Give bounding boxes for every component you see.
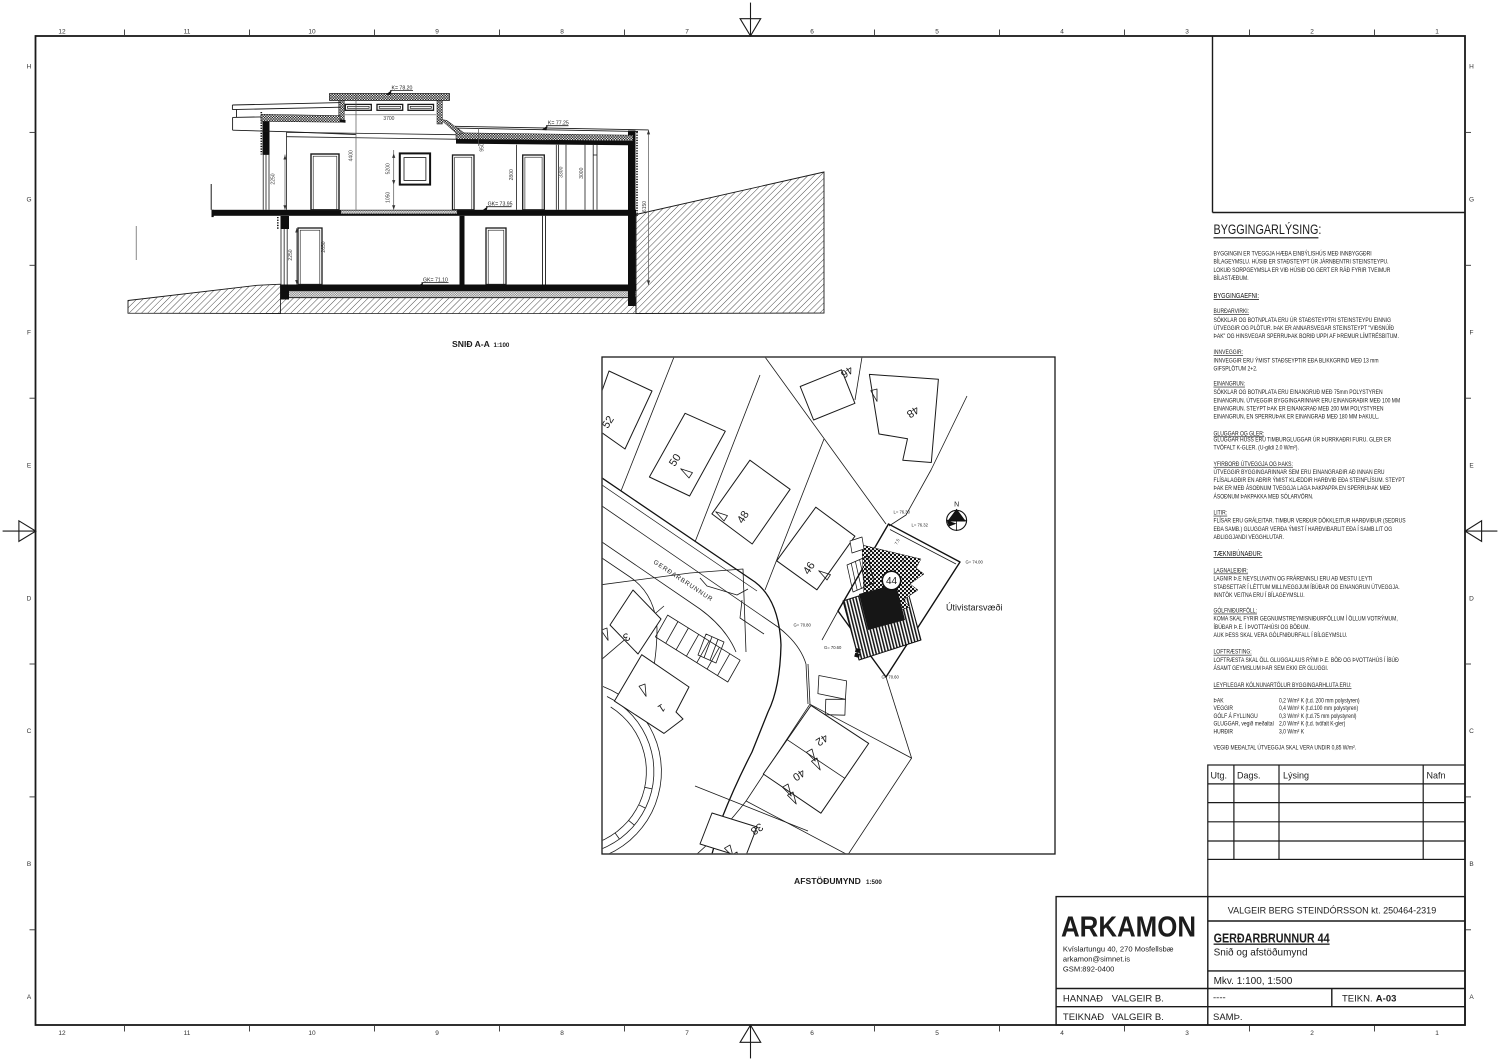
svg-text:7: 7 [685, 29, 689, 36]
svg-text:LOFTRÆSTA SKAL ÖLL GLUGGALAUS: LOFTRÆSTA SKAL ÖLL GLUGGALAUS RÝMI Þ.E. … [1214, 656, 1399, 664]
svg-text:Mkv. 1:100, 1:500: Mkv. 1:100, 1:500 [1214, 976, 1293, 987]
svg-text:KOMA SKAL FYRIR GEGNUMSTREYMIS: KOMA SKAL FYRIR GEGNUMSTREYMISNIÐURFÖLLU… [1214, 615, 1399, 623]
svg-text:GLUGGAR, vegið meðaltal: GLUGGAR, vegið meðaltal [1214, 720, 1274, 728]
svg-text:ÚTVEGGIR BYGGINGARINNAR SEM ER: ÚTVEGGIR BYGGINGARINNAR SEM ERU EINANGRA… [1214, 468, 1385, 476]
svg-text:GSM:892-0400: GSM:892-0400 [1063, 965, 1115, 974]
svg-text:8: 8 [560, 1030, 564, 1037]
svg-text:Snið og afstöðumynd: Snið og afstöðumynd [1214, 947, 1308, 959]
svg-text:A: A [27, 994, 32, 1001]
svg-text:AUK ÞESS SKAL VERA GÓLFNIÐURFA: AUK ÞESS SKAL VERA GÓLFNIÐURFALL Í BÍLGE… [1214, 631, 1348, 639]
svg-text:L= 76.30: L= 76.30 [894, 510, 911, 515]
svg-text:2800: 2800 [509, 169, 515, 180]
svg-text:H: H [27, 64, 32, 71]
svg-text:3000: 3000 [579, 167, 585, 178]
svg-text:3,0 W/m² K: 3,0 W/m² K [1279, 729, 1304, 736]
svg-text:4400: 4400 [348, 150, 354, 161]
svg-text:BYGGINGAEFNI:: BYGGINGAEFNI: [1214, 292, 1260, 300]
svg-text:TEIKNAÐ: TEIKNAÐ [1063, 1012, 1104, 1023]
svg-text:0,4 W/m² K (t.d.100 mm polysty: 0,4 W/m² K (t.d.100 mm polystyren) [1279, 706, 1358, 713]
svg-text:G= 70.60: G= 70.60 [824, 645, 842, 650]
svg-text:3: 3 [1185, 1030, 1189, 1037]
svg-text:LEYFILEGAR KÓLNUNARTÖLUR BYGGI: LEYFILEGAR KÓLNUNARTÖLUR BYGGINGARHLUTA … [1214, 681, 1352, 689]
svg-text:GÓLF Á FYLLINGU: GÓLF Á FYLLINGU [1214, 712, 1258, 720]
svg-text:10: 10 [308, 1030, 316, 1037]
svg-text:D: D [27, 595, 32, 602]
svg-text:6: 6 [810, 1030, 814, 1037]
svg-text:4: 4 [1060, 29, 1064, 36]
svg-text:ÁSAMT GEYMSLUM ÞAR SEM EKKI ER: ÁSAMT GEYMSLUM ÞAR SEM EKKI ER GLUGGI. [1214, 664, 1329, 672]
svg-text:5200: 5200 [386, 163, 392, 174]
svg-text:LAGNALEIÐIR:: LAGNALEIÐIR: [1214, 568, 1249, 575]
svg-text:EINANGRUN, EN SPERRUÞAK ER EIN: EINANGRUN, EN SPERRUÞAK ER EINANGRAÐ MEÐ… [1214, 414, 1380, 421]
svg-text:FLÍSALAGÐIR EN AÐRIR ÝMIST KLÆ: FLÍSALAGÐIR EN AÐRIR ÝMIST KLÆDDIR HARÐV… [1214, 476, 1406, 484]
svg-text:7: 7 [685, 1030, 689, 1037]
svg-text:SAMÞ.: SAMÞ. [1213, 1012, 1243, 1023]
svg-text:B: B [27, 861, 31, 868]
svg-text:0,3 W/m² K (t.d.75 mm polystyr: 0,3 W/m² K (t.d.75 mm polystyrenl) [1279, 713, 1356, 720]
svg-text:TVÖFALT K-GLER. (U-gildi 2.0 W: TVÖFALT K-GLER. (U-gildi 2.0 W/m²). [1214, 444, 1300, 452]
svg-text:2,0 W/m² K (t.d. tvöfalt K-gle: 2,0 W/m² K (t.d. tvöfalt K-gler) [1279, 721, 1345, 728]
svg-text:Lýsing: Lýsing [1283, 771, 1309, 781]
svg-text:G= 70.80: G= 70.80 [794, 623, 812, 628]
svg-text:3700: 3700 [383, 116, 394, 122]
svg-text:BÍLASTÆÐUM.: BÍLASTÆÐUM. [1214, 274, 1249, 282]
svg-text:GLUGGAR HÚSS ERU TIMBURGLUGGAR: GLUGGAR HÚSS ERU TIMBURGLUGGAR ÚR ÞURRKA… [1214, 436, 1392, 444]
svg-text:SÖKKLAR OG BOTNPLATA ERU ÚR ST: SÖKKLAR OG BOTNPLATA ERU ÚR STAÐSTEYPTRI… [1214, 316, 1392, 324]
svg-text:1: 1 [1435, 1030, 1439, 1037]
svg-text:VEGIÐ MEÐALTAL ÚTVEGGJA SKAL V: VEGIÐ MEÐALTAL ÚTVEGGJA SKAL VERA UNDIR … [1214, 744, 1357, 752]
svg-text:G: G [1469, 197, 1474, 204]
svg-text:SNIÐ A-A: SNIÐ A-A [452, 339, 490, 349]
svg-text:D: D [1469, 595, 1474, 602]
svg-text:arkamon@simnet.is: arkamon@simnet.is [1063, 955, 1130, 964]
svg-text:INNVEGGIR:: INNVEGGIR: [1214, 349, 1244, 356]
svg-text:SÖKKLAR OG BOTNPLATA ERU EINAN: SÖKKLAR OG BOTNPLATA ERU EINANGRUÐ MEÐ 7… [1214, 389, 1383, 397]
svg-text:LITIR:: LITIR: [1214, 510, 1228, 517]
svg-text:C: C [27, 728, 32, 735]
svg-text:2250: 2250 [271, 173, 277, 184]
svg-text:44: 44 [886, 576, 898, 587]
svg-text:B: B [1469, 861, 1473, 868]
svg-text:ÞAK: ÞAK [1214, 698, 1224, 705]
svg-text:YFIRBORÐ ÚTVEGGJA OG ÞAKS:: YFIRBORÐ ÚTVEGGJA OG ÞAKS: [1214, 460, 1294, 468]
svg-text:EINANGRUN:: EINANGRUN: [1214, 381, 1246, 388]
svg-text:BYGGINGARLÝSING:: BYGGINGARLÝSING: [1214, 220, 1322, 237]
svg-text:2650: 2650 [321, 241, 327, 252]
svg-text:1: 1 [1435, 29, 1439, 36]
svg-text:3300: 3300 [558, 166, 564, 177]
svg-text:E: E [27, 462, 32, 469]
svg-text:Kvíslartungu 40, 270 Mosfellsb: Kvíslartungu 40, 270 Mosfellsbæ [1063, 945, 1174, 954]
svg-text:12: 12 [58, 1030, 66, 1037]
svg-text:Nafn: Nafn [1427, 771, 1446, 781]
svg-text:A-03: A-03 [1376, 994, 1397, 1005]
svg-text:9: 9 [435, 29, 439, 36]
svg-text:LAGNIR Þ.E NEYSLUVATN OG FRÁ: LAGNIR Þ.E NEYSLUVATN OG FRÁRENNSLI ERU … [1214, 575, 1373, 583]
svg-text:2250: 2250 [288, 249, 294, 260]
svg-text:G= 74.00: G= 74.00 [966, 560, 984, 565]
svg-text:ÞAK" OG HINSVEGAR SPERRUÞAK BO: ÞAK" OG HINSVEGAR SPERRUÞAK BORIÐ UPPI A… [1214, 332, 1400, 340]
svg-text:2: 2 [1310, 1030, 1314, 1037]
svg-text:ÞAK ER MEÐ ÁSOÐNUM TVEGGJA LAG: ÞAK ER MEÐ ÁSOÐNUM TVEGGJA LAGA ÞAKPAPPA… [1214, 485, 1391, 493]
svg-text:HANNAÐ: HANNAÐ [1063, 994, 1103, 1005]
svg-text:VALGEIR B.: VALGEIR B. [1112, 1012, 1164, 1023]
svg-text:F: F [1470, 330, 1474, 337]
svg-text:N: N [954, 502, 959, 509]
svg-text:1:100: 1:100 [494, 342, 510, 349]
svg-text:G: G [26, 197, 31, 204]
svg-text:FLÍSAR ERU GRÁLEITAR. TIMBUR V: FLÍSAR ERU GRÁLEITAR. TIMBUR VERÐUR DÖKK… [1214, 517, 1406, 525]
svg-text:5: 5 [935, 29, 939, 36]
svg-text:BÍLAGEYMSLU. HÚSIÐ ER STAÐSTEY: BÍLAGEYMSLU. HÚSIÐ ER STAÐSTEYPT ÚR JÁRN… [1214, 258, 1389, 266]
svg-text:GERÐARBRUNNUR 44: GERÐARBRUNNUR 44 [1214, 931, 1331, 946]
svg-text:H: H [1469, 64, 1474, 71]
svg-text:0,2 W/m² K (t.d. 200 mm polyst: 0,2 W/m² K (t.d. 200 mm polystyren) [1279, 698, 1360, 705]
svg-text:LOFTRÆSTING:: LOFTRÆSTING: [1214, 649, 1252, 656]
svg-text:GÓLFNIÐURFÖLL:: GÓLFNIÐURFÖLL: [1214, 607, 1258, 615]
svg-text:ARKAMON: ARKAMON [1061, 912, 1196, 944]
svg-text:12: 12 [58, 29, 66, 36]
svg-text:F: F [27, 330, 31, 337]
svg-text:TEIKN.: TEIKN. [1342, 994, 1373, 1005]
svg-text:BYGGINGIN ER TVEGGJA HÆÐA EINB: BYGGINGIN ER TVEGGJA HÆÐA EINBÝLISHÚS ME… [1214, 250, 1372, 258]
svg-text:5: 5 [935, 1030, 939, 1037]
svg-text:STAÐSETTAR Í LÉTTUM MILLIVEGG: STAÐSETTAR Í LÉTTUM MILLIVEGGJUM ÍBÚÐAR … [1214, 583, 1401, 591]
svg-text:6150: 6150 [642, 201, 648, 212]
svg-text:6: 6 [810, 29, 814, 36]
svg-text:HURÐIR: HURÐIR [1214, 729, 1234, 736]
svg-text:1:500: 1:500 [866, 879, 882, 886]
svg-text:ÍBÚÐAR Þ.E. Í ÞVOTTAHÚSI OG BÖ: ÍBÚÐAR Þ.E. Í ÞVOTTAHÚSI OG BÖÐUM. [1214, 623, 1311, 631]
svg-text:11: 11 [184, 29, 191, 36]
svg-text:INNTÖK VEITNA ERU Í BÍLAGEYMSL: INNTÖK VEITNA ERU Í BÍLAGEYMSLU. [1214, 591, 1305, 599]
svg-text:C: C [1469, 728, 1474, 735]
svg-text:VALGEIR B.: VALGEIR B. [1112, 994, 1164, 1005]
svg-text:ÚTVEGGIR OG PLÖTUR. ÞAK ER ANN: ÚTVEGGIR OG PLÖTUR. ÞAK ER ANNARSVEGAR S… [1214, 324, 1395, 332]
svg-text:----: ---- [1213, 993, 1226, 1004]
svg-text:Dags.: Dags. [1237, 771, 1261, 781]
svg-text:LOKUÐ SORPGEYMSLA ER VIÐ HÚSIÐ: LOKUÐ SORPGEYMSLA ER VIÐ HÚSIÐ OG GERT E… [1214, 266, 1391, 274]
svg-text:10: 10 [308, 29, 316, 36]
svg-text:VALGEIR BERG STEINDÓRSSON kt.: VALGEIR BERG STEINDÓRSSON kt. 250464-231… [1228, 906, 1436, 916]
svg-text:TÆKNIBÚNAÐUR:: TÆKNIBÚNAÐUR: [1214, 548, 1263, 558]
svg-text:BURÐARVIRKI:: BURÐARVIRKI: [1214, 309, 1250, 316]
svg-text:4: 4 [1060, 1030, 1064, 1037]
svg-text:INNVEGGIR ERU ÝMIST STAÐSEYPTI: INNVEGGIR ERU ÝMIST STAÐSEYPTIR EÐA BLIK… [1214, 357, 1379, 365]
svg-text:AFSTÖÐUMYND: AFSTÖÐUMYND [794, 876, 861, 886]
svg-text:AÐLIGGJANDI VEGGHLUTAR.: AÐLIGGJANDI VEGGHLUTAR. [1214, 534, 1285, 541]
svg-text:EINANGRUN. STEYPT ÞAK ER EINAN: EINANGRUN. STEYPT ÞAK ER EINANGRAÐ MEÐ 2… [1214, 406, 1384, 413]
svg-text:950: 950 [479, 143, 485, 152]
svg-text:Utg.: Utg. [1211, 771, 1228, 781]
svg-text:9: 9 [435, 1030, 439, 1037]
svg-text:GIFSPLÖTUM 2+2.: GIFSPLÖTUM 2+2. [1214, 365, 1258, 373]
svg-text:EÐA SAMB.) GLUGGAR VERÐA ÝMIST: EÐA SAMB.) GLUGGAR VERÐA ÝMIST Í HARÐVIÐ… [1214, 525, 1393, 533]
svg-text:1050: 1050 [386, 192, 392, 203]
svg-text:11: 11 [184, 1030, 191, 1037]
svg-text:VEGGIR: VEGGIR [1214, 706, 1234, 713]
svg-text:A: A [1469, 994, 1474, 1001]
svg-text:2: 2 [1310, 29, 1314, 36]
svg-text:Útivistarsvæði: Útivistarsvæði [946, 603, 1003, 613]
svg-text:3: 3 [1185, 29, 1189, 36]
svg-text:8: 8 [560, 29, 564, 36]
svg-text:E: E [1469, 462, 1474, 469]
svg-text:G= 70.60: G= 70.60 [882, 675, 900, 680]
svg-text:L= 76.32: L= 76.32 [912, 523, 929, 528]
svg-text:ÁSOÐNUM ÞAKPAKKA MEÐ SÓLARVÖRN: ÁSOÐNUM ÞAKPAKKA MEÐ SÓLARVÖRN. [1214, 493, 1314, 501]
svg-text:EINANGRUN. ÚTVEGGIR BYGGINGA: EINANGRUN. ÚTVEGGIR BYGGINGARINNAR ERU E… [1214, 397, 1401, 405]
